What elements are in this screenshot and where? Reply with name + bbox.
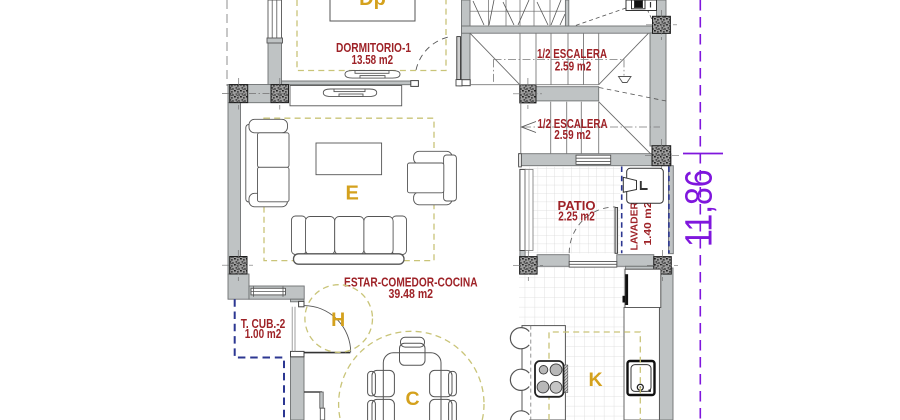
svg-text:C: C: [405, 388, 419, 410]
svg-text:2.59 m2: 2.59 m2: [554, 128, 591, 142]
svg-text:H: H: [331, 309, 345, 331]
svg-text:1.00 m2: 1.00 m2: [245, 327, 282, 341]
svg-text:2.59 m2: 2.59 m2: [555, 59, 592, 73]
svg-text:E: E: [346, 183, 359, 205]
svg-text:Dp: Dp: [359, 0, 386, 10]
svg-text:1.40 m2: 1.40 m2: [643, 201, 654, 246]
svg-text:K: K: [588, 369, 602, 391]
svg-text:13.58 m2: 13.58 m2: [352, 53, 394, 67]
svg-text:2.25 m2: 2.25 m2: [558, 209, 595, 223]
svg-text:39.48 m2: 39.48 m2: [389, 287, 434, 301]
svg-text:11,86: 11,86: [679, 170, 721, 248]
